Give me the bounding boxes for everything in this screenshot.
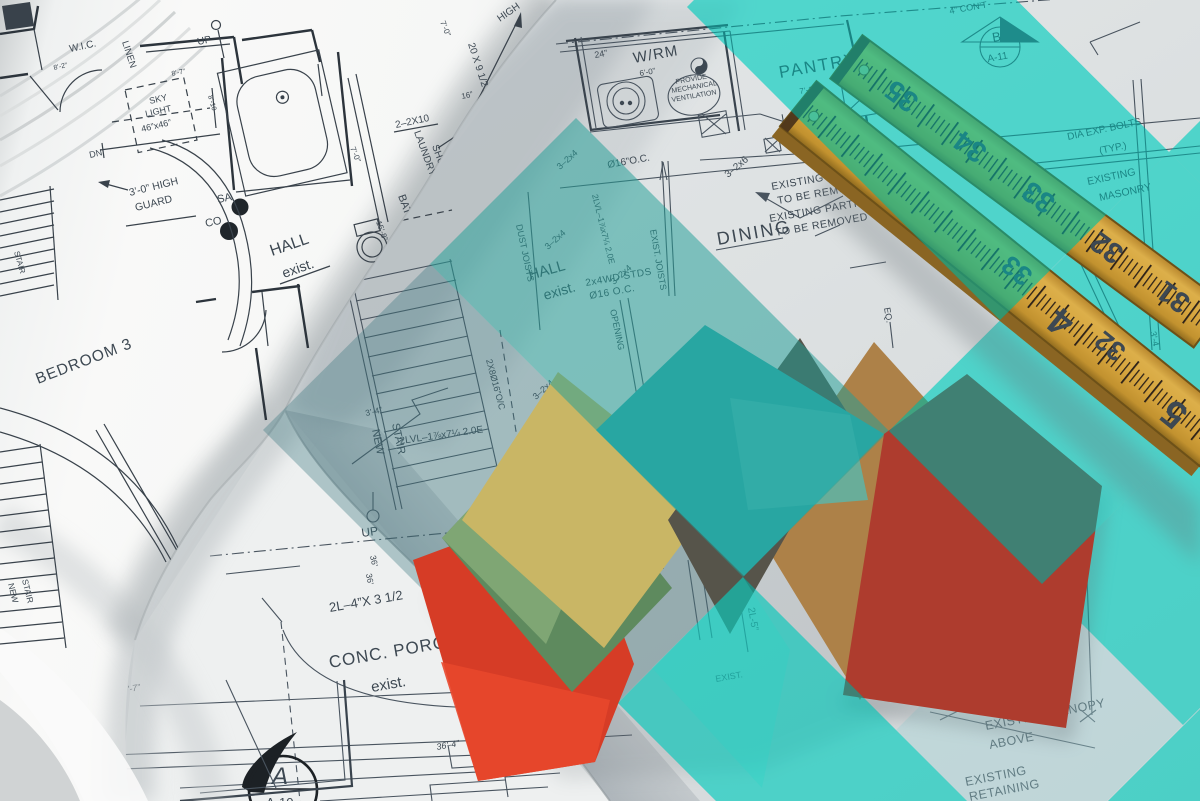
svg-text:A-10: A-10: [266, 795, 293, 801]
svg-text:36’: 36’: [364, 573, 376, 586]
